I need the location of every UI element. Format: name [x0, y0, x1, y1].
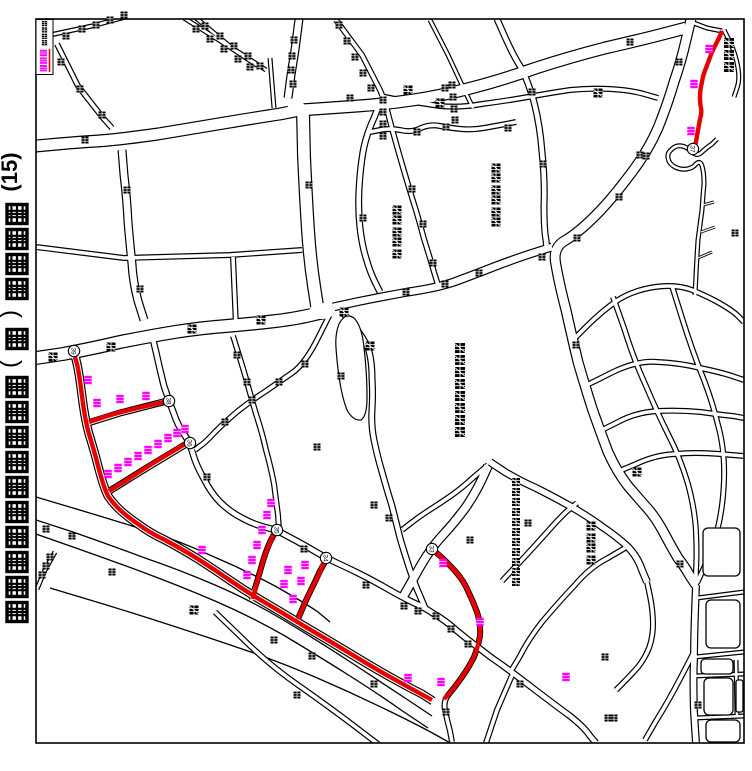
svg-text:38: 38: [165, 397, 172, 405]
svg-text:(: (: [0, 360, 23, 368]
svg-text:39: 39: [70, 347, 77, 355]
svg-text:): ): [0, 310, 23, 318]
svg-text:33: 33: [428, 545, 435, 553]
svg-text:(15): (15): [0, 152, 22, 191]
svg-text:34: 34: [322, 554, 329, 562]
svg-text:37: 37: [689, 145, 696, 153]
svg-text:36: 36: [186, 439, 193, 447]
svg-text:35: 35: [273, 526, 280, 534]
